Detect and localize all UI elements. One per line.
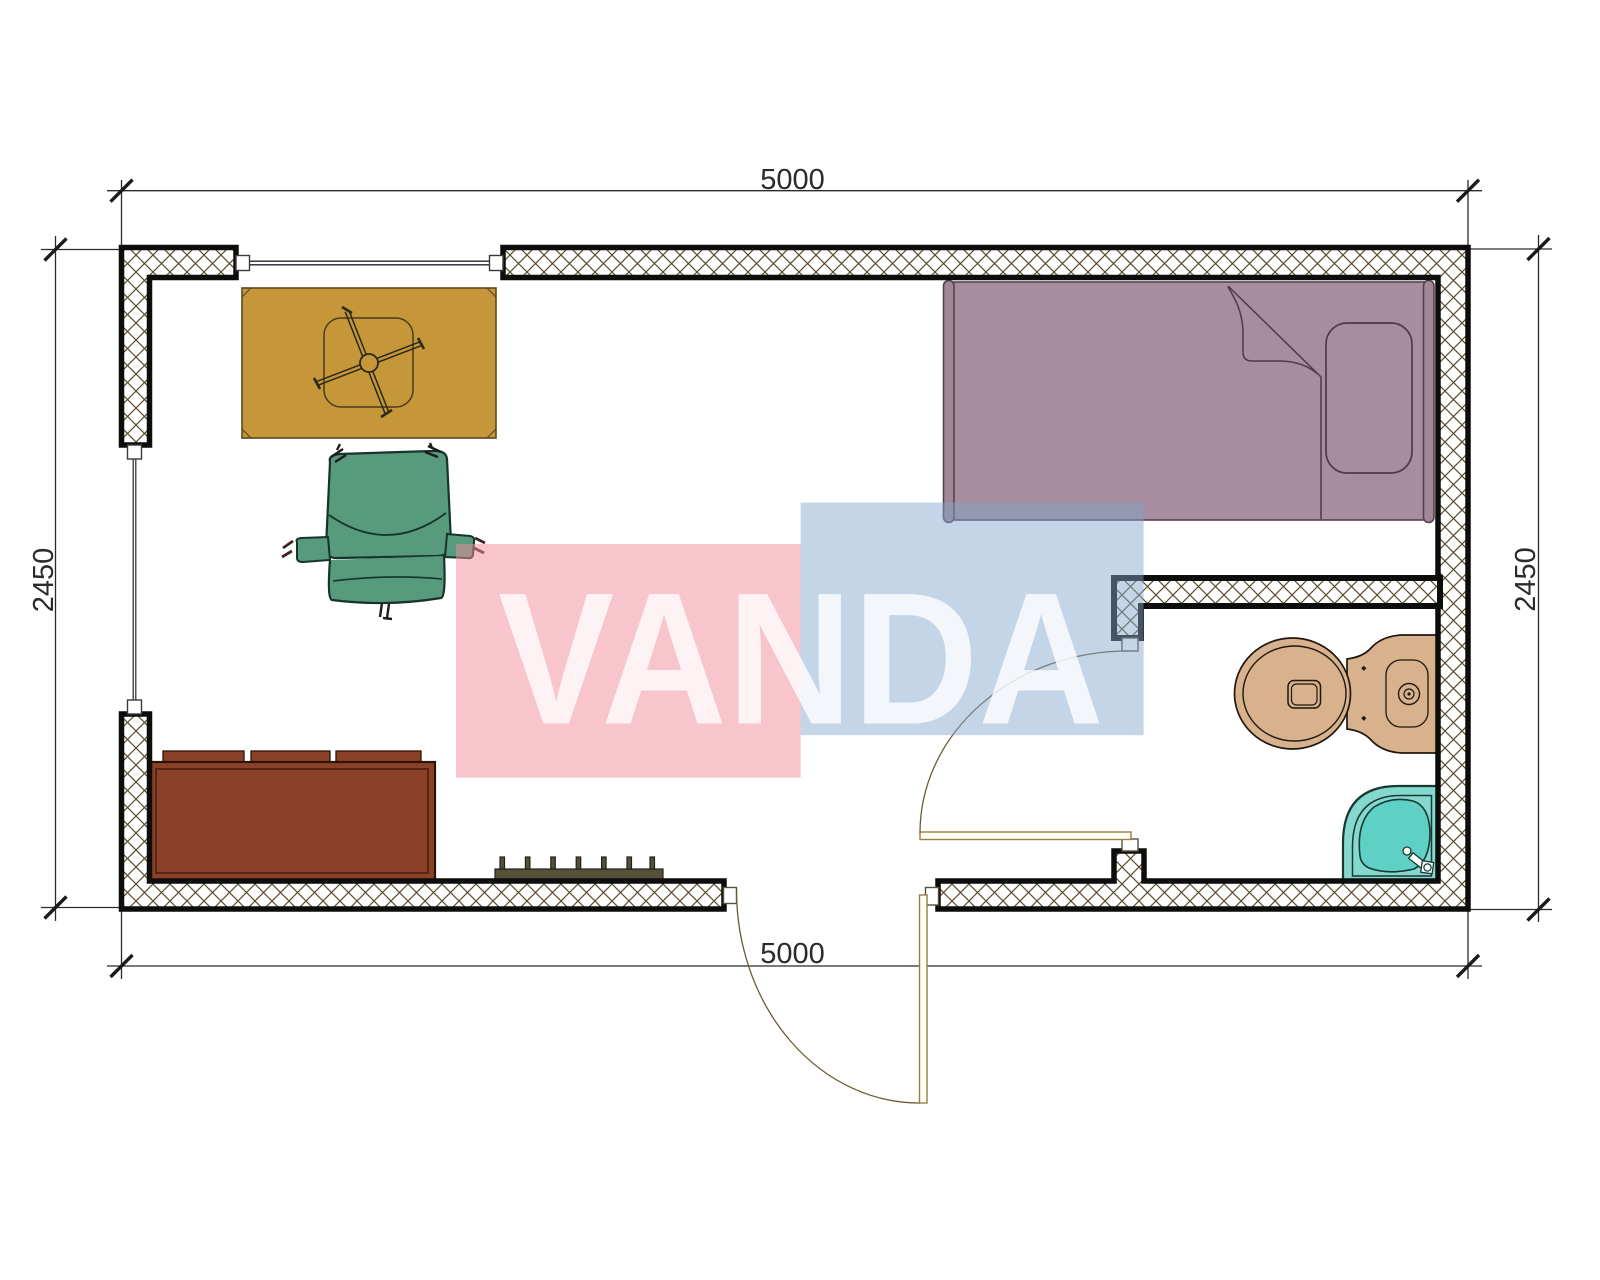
svg-text:2450: 2450 (1510, 547, 1542, 612)
svg-text:VANDA: VANDA (498, 554, 1104, 764)
svg-text:5000: 5000 (760, 164, 825, 196)
svg-text:5000: 5000 (760, 938, 825, 970)
svg-text:2450: 2450 (28, 548, 60, 613)
